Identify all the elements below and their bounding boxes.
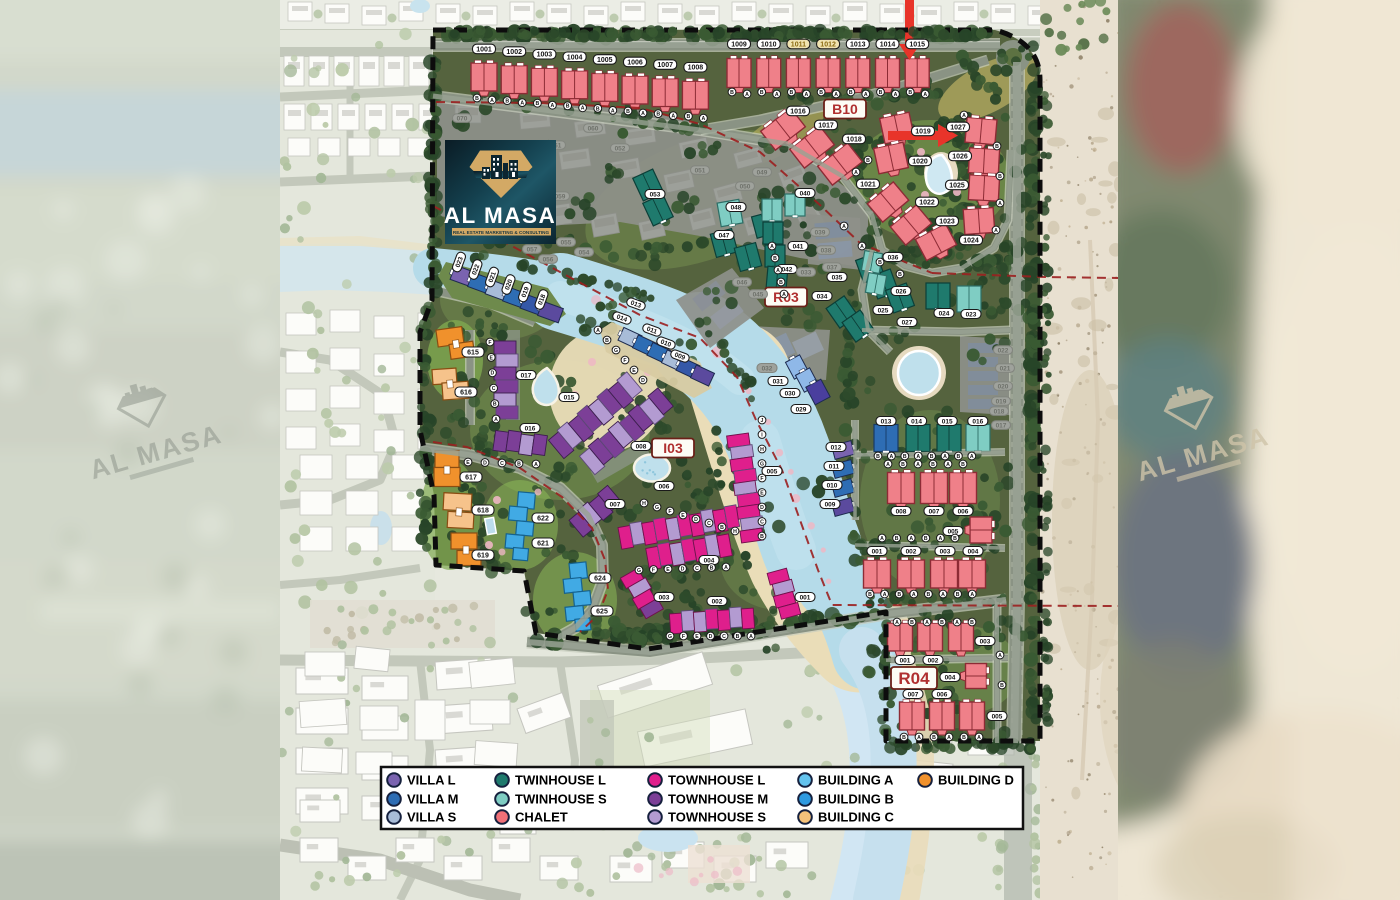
svg-text:VILLA M: VILLA M [407,792,459,807]
svg-text:A: A [895,620,899,626]
svg-text:B: B [998,174,1002,180]
svg-text:025: 025 [878,307,889,314]
svg-text:010: 010 [827,482,838,489]
svg-text:D: D [709,634,713,640]
svg-text:1027: 1027 [950,125,966,132]
svg-text:A: A [834,92,838,98]
svg-text:F: F [668,509,671,515]
svg-text:001: 001 [872,548,883,555]
svg-text:B: B [566,104,570,110]
svg-text:B: B [720,525,724,531]
svg-text:B10: B10 [832,101,858,117]
svg-text:B: B [903,454,907,460]
svg-text:G: G [668,634,672,640]
svg-text:A: A [939,536,943,542]
svg-text:E: E [466,460,470,466]
svg-text:B: B [970,620,974,626]
svg-text:030: 030 [785,390,796,397]
svg-text:B: B [910,620,914,626]
svg-text:B: B [901,462,905,468]
svg-text:B: B [736,634,740,640]
svg-text:A: A [805,92,809,98]
svg-text:624: 624 [594,576,606,583]
svg-text:B: B [626,109,630,115]
svg-text:B: B [932,735,936,741]
svg-text:B: B [898,272,902,278]
svg-text:1011: 1011 [791,42,806,49]
svg-text:1003: 1003 [537,52,553,59]
svg-text:625: 625 [596,609,608,616]
svg-text:A: A [941,592,945,598]
svg-text:A: A [916,454,920,460]
svg-text:A: A [490,98,494,104]
svg-text:A: A [946,462,950,468]
svg-text:022: 022 [998,347,1009,354]
svg-text:019: 019 [996,398,1007,405]
svg-text:016: 016 [972,418,983,425]
svg-text:B: B [730,90,734,96]
svg-text:B: B [596,106,600,112]
svg-text:1005: 1005 [597,57,613,64]
svg-text:A: A [916,462,920,468]
svg-text:A: A [886,462,890,468]
svg-text:A: A [520,101,524,107]
svg-text:R04: R04 [898,669,930,688]
svg-text:G: G [655,505,659,511]
svg-text:B: B [505,99,509,105]
svg-text:004: 004 [968,548,979,555]
svg-text:006: 006 [937,691,948,698]
svg-text:008: 008 [896,508,907,515]
svg-text:053: 053 [650,191,661,198]
svg-text:008: 008 [636,443,647,450]
svg-text:023: 023 [966,311,977,318]
svg-text:B: B [927,592,931,598]
svg-text:B: B [760,534,764,540]
svg-text:TOWNHOUSE L: TOWNHOUSE L [668,773,765,788]
svg-text:1007: 1007 [657,62,673,69]
svg-text:1019: 1019 [915,129,931,136]
svg-text:VILLA S: VILLA S [407,810,457,825]
svg-text:A: A [534,462,538,468]
svg-text:004: 004 [704,557,715,564]
svg-text:A: A [912,592,916,598]
svg-text:B: B [879,90,883,96]
svg-text:TWINHOUSE S: TWINHOUSE S [515,792,607,807]
svg-text:011: 011 [829,463,840,470]
svg-text:A: A [775,92,779,98]
svg-text:A: A [860,244,864,250]
svg-text:057: 057 [527,246,538,253]
svg-text:D: D [483,460,487,466]
svg-text:015: 015 [564,394,575,401]
svg-text:017: 017 [996,422,1007,429]
svg-text:A: A [749,634,753,640]
svg-text:G: G [760,461,764,467]
svg-text:1020: 1020 [912,159,928,166]
svg-text:A: A [970,454,974,460]
svg-text:C: C [707,521,711,527]
svg-text:C: C [695,566,699,572]
svg-text:001: 001 [800,594,811,601]
svg-text:A: A [970,592,974,598]
svg-text:615: 615 [467,350,479,357]
svg-text:TOWNHOUSE S: TOWNHOUSE S [668,810,766,825]
svg-text:J: J [761,418,764,424]
svg-text:TWINHOUSE L: TWINHOUSE L [515,773,606,788]
svg-text:I03: I03 [663,440,683,456]
svg-text:B: B [953,536,957,542]
svg-text:033: 033 [801,269,812,276]
svg-text:042: 042 [782,266,793,273]
svg-text:G: G [614,348,618,354]
svg-text:1016: 1016 [790,109,806,116]
svg-text:A: A [581,106,585,112]
svg-text:B: B [605,338,609,344]
svg-text:B: B [962,735,966,741]
svg-text:059: 059 [555,193,566,200]
svg-text:A: A [925,620,929,626]
svg-text:A: A [782,292,786,298]
svg-text:007: 007 [908,691,919,698]
svg-text:1010: 1010 [761,42,777,49]
svg-text:A: A [596,328,600,334]
svg-text:REAL ESTATE MARKETING & CONSUL: REAL ESTATE MARKETING & CONSULTING [453,230,550,235]
svg-text:060: 060 [588,125,599,132]
svg-text:F: F [760,476,763,482]
svg-text:B: B [760,90,764,96]
svg-text:007: 007 [929,508,940,515]
svg-text:1009: 1009 [731,42,747,49]
svg-text:B: B [1000,683,1004,689]
svg-text:B: B [956,592,960,598]
svg-text:B: B [710,565,714,571]
svg-text:A: A [671,114,675,120]
svg-text:VILLA L: VILLA L [407,773,456,788]
svg-text:A: A [943,454,947,460]
svg-text:049: 049 [757,169,768,176]
svg-text:029: 029 [796,406,807,413]
svg-text:A: A [745,92,749,98]
svg-text:B: B [876,454,880,460]
svg-text:070: 070 [457,115,468,122]
svg-text:622: 622 [537,516,549,523]
svg-text:034: 034 [817,293,828,300]
svg-text:G: G [637,568,641,574]
svg-text:1015: 1015 [909,42,925,49]
svg-text:1026: 1026 [952,154,968,161]
svg-text:051: 051 [695,167,706,174]
svg-text:BUILDING B: BUILDING B [818,792,894,807]
svg-text:1022: 1022 [919,200,935,207]
svg-text:041: 041 [793,243,804,250]
svg-text:001: 001 [900,657,911,664]
svg-text:E: E [489,355,493,361]
svg-text:1023: 1023 [939,219,955,226]
svg-text:617: 617 [465,475,477,482]
svg-text:B: B [656,112,660,118]
svg-text:A: A [947,735,951,741]
svg-text:036: 036 [888,254,899,261]
svg-text:045: 045 [753,291,764,298]
svg-text:616: 616 [460,390,472,397]
svg-text:E: E [695,634,699,640]
svg-text:B: B [779,280,783,286]
svg-text:A: A [977,735,981,741]
svg-text:B: B [517,461,521,467]
svg-text:F: F [623,358,626,364]
svg-text:B: B [897,592,901,598]
svg-text:037: 037 [827,264,838,271]
svg-text:D: D [694,517,698,523]
svg-text:032: 032 [762,365,773,372]
svg-text:012: 012 [831,444,842,451]
svg-text:B: B [961,462,965,468]
svg-text:040: 040 [800,190,811,197]
svg-text:D: D [641,378,645,384]
svg-text:A: A [994,228,998,234]
svg-text:A: A [894,92,898,98]
svg-text:014: 014 [911,418,922,425]
svg-text:050: 050 [740,183,751,190]
svg-text:056: 056 [543,256,554,263]
svg-text:H: H [733,529,737,535]
svg-text:E: E [681,513,685,519]
svg-text:005: 005 [767,468,778,475]
svg-text:004: 004 [945,674,956,681]
svg-text:A: A [854,170,858,176]
svg-text:B: B [895,536,899,542]
svg-text:D: D [491,371,495,377]
svg-text:002: 002 [712,598,723,605]
svg-text:B: B [536,101,540,107]
svg-text:1014: 1014 [880,42,896,49]
svg-text:024: 024 [939,310,950,317]
svg-text:1025: 1025 [949,183,965,190]
svg-text:B: B [493,402,497,408]
svg-text:1006: 1006 [627,60,643,67]
svg-text:A: A [917,735,921,741]
svg-text:AL MASA: AL MASA [444,203,557,228]
svg-text:B: B [957,454,961,460]
svg-text:BUILDING C: BUILDING C [818,810,894,825]
svg-text:B: B [902,735,906,741]
svg-text:1008: 1008 [688,65,704,72]
svg-text:027: 027 [902,319,913,326]
svg-text:017: 017 [521,372,532,379]
svg-text:A: A [724,565,728,571]
svg-text:B: B [940,620,944,626]
svg-text:H: H [642,501,646,507]
svg-text:048: 048 [731,204,742,211]
svg-text:026: 026 [896,288,907,295]
svg-text:038: 038 [821,247,832,254]
svg-text:A: A [770,244,774,250]
svg-text:F: F [488,340,491,346]
svg-text:B: B [819,90,823,96]
svg-text:021: 021 [1000,365,1011,372]
svg-text:006: 006 [958,508,969,515]
svg-text:A: A [842,224,846,230]
svg-text:054: 054 [579,249,590,256]
svg-text:007: 007 [610,501,621,508]
svg-text:B: B [475,96,479,102]
svg-text:1002: 1002 [506,49,522,56]
svg-text:A: A [551,103,555,109]
svg-text:C: C [760,519,764,525]
svg-text:1018: 1018 [846,137,862,144]
svg-text:TOWNHOUSE M: TOWNHOUSE M [668,792,768,807]
svg-text:F: F [652,567,655,573]
svg-text:020: 020 [998,383,1009,390]
svg-text:003: 003 [940,548,951,555]
svg-text:A: A [880,536,884,542]
svg-text:A: A [998,653,1002,659]
svg-text:A: A [611,108,615,114]
svg-text:009: 009 [825,501,836,508]
svg-text:B: B [687,114,691,120]
svg-text:H: H [760,447,764,453]
svg-text:039: 039 [815,229,826,236]
svg-text:F: F [682,634,685,640]
svg-text:002: 002 [928,657,939,664]
svg-text:B: B [930,454,934,460]
svg-text:B: B [878,260,882,266]
svg-text:006: 006 [659,483,670,490]
svg-text:D: D [681,566,685,572]
svg-text:A: A [909,536,913,542]
svg-text:A: A [955,620,959,626]
svg-text:B: B [868,592,872,598]
svg-text:055: 055 [561,239,572,246]
svg-text:047: 047 [719,232,730,239]
svg-text:003: 003 [980,638,991,645]
svg-text:031: 031 [773,378,784,385]
svg-text:002: 002 [906,548,917,555]
svg-text:C: C [722,634,726,640]
svg-text:A: A [776,268,780,274]
svg-text:A: A [641,111,645,117]
svg-text:E: E [632,368,636,374]
svg-text:1021: 1021 [860,182,876,189]
svg-text:013: 013 [881,418,892,425]
svg-text:CHALET: CHALET [515,810,568,825]
svg-text:B: B [790,90,794,96]
svg-text:B: B [931,462,935,468]
svg-text:035: 035 [832,274,843,281]
svg-text:B: B [924,536,928,542]
svg-text:1013: 1013 [850,42,866,49]
svg-text:E: E [760,490,764,496]
svg-text:A: A [883,592,887,598]
svg-text:018: 018 [994,408,1005,415]
svg-text:046: 046 [737,279,748,286]
svg-text:D: D [760,505,764,511]
svg-text:B: B [773,256,777,262]
svg-text:B: B [866,158,870,164]
svg-text:BUILDING D: BUILDING D [938,773,1014,788]
svg-text:1004: 1004 [567,54,583,61]
svg-text:C: C [492,386,496,392]
svg-text:621: 621 [537,541,549,548]
svg-text:052: 052 [615,145,626,152]
svg-text:003: 003 [659,594,670,601]
svg-text:619: 619 [477,553,489,560]
svg-text:BUILDING A: BUILDING A [818,773,894,788]
svg-text:618: 618 [477,508,489,515]
svg-text:005: 005 [992,713,1003,720]
svg-text:A: A [923,92,927,98]
svg-text:1024: 1024 [963,238,979,245]
svg-text:1012: 1012 [820,42,836,49]
svg-text:A: A [864,92,868,98]
svg-text:B: B [849,90,853,96]
svg-text:B: B [908,90,912,96]
svg-text:A: A [998,201,1002,207]
svg-text:A: A [494,417,498,423]
svg-text:C: C [500,461,504,467]
svg-text:A: A [962,113,966,119]
svg-text:016: 016 [525,425,536,432]
svg-text:A: A [890,454,894,460]
svg-text:1001: 1001 [476,47,492,54]
svg-text:1017: 1017 [818,123,834,130]
svg-text:E: E [666,567,670,573]
svg-text:A: A [702,116,706,122]
svg-text:015: 015 [942,418,953,425]
svg-text:B: B [995,144,999,150]
